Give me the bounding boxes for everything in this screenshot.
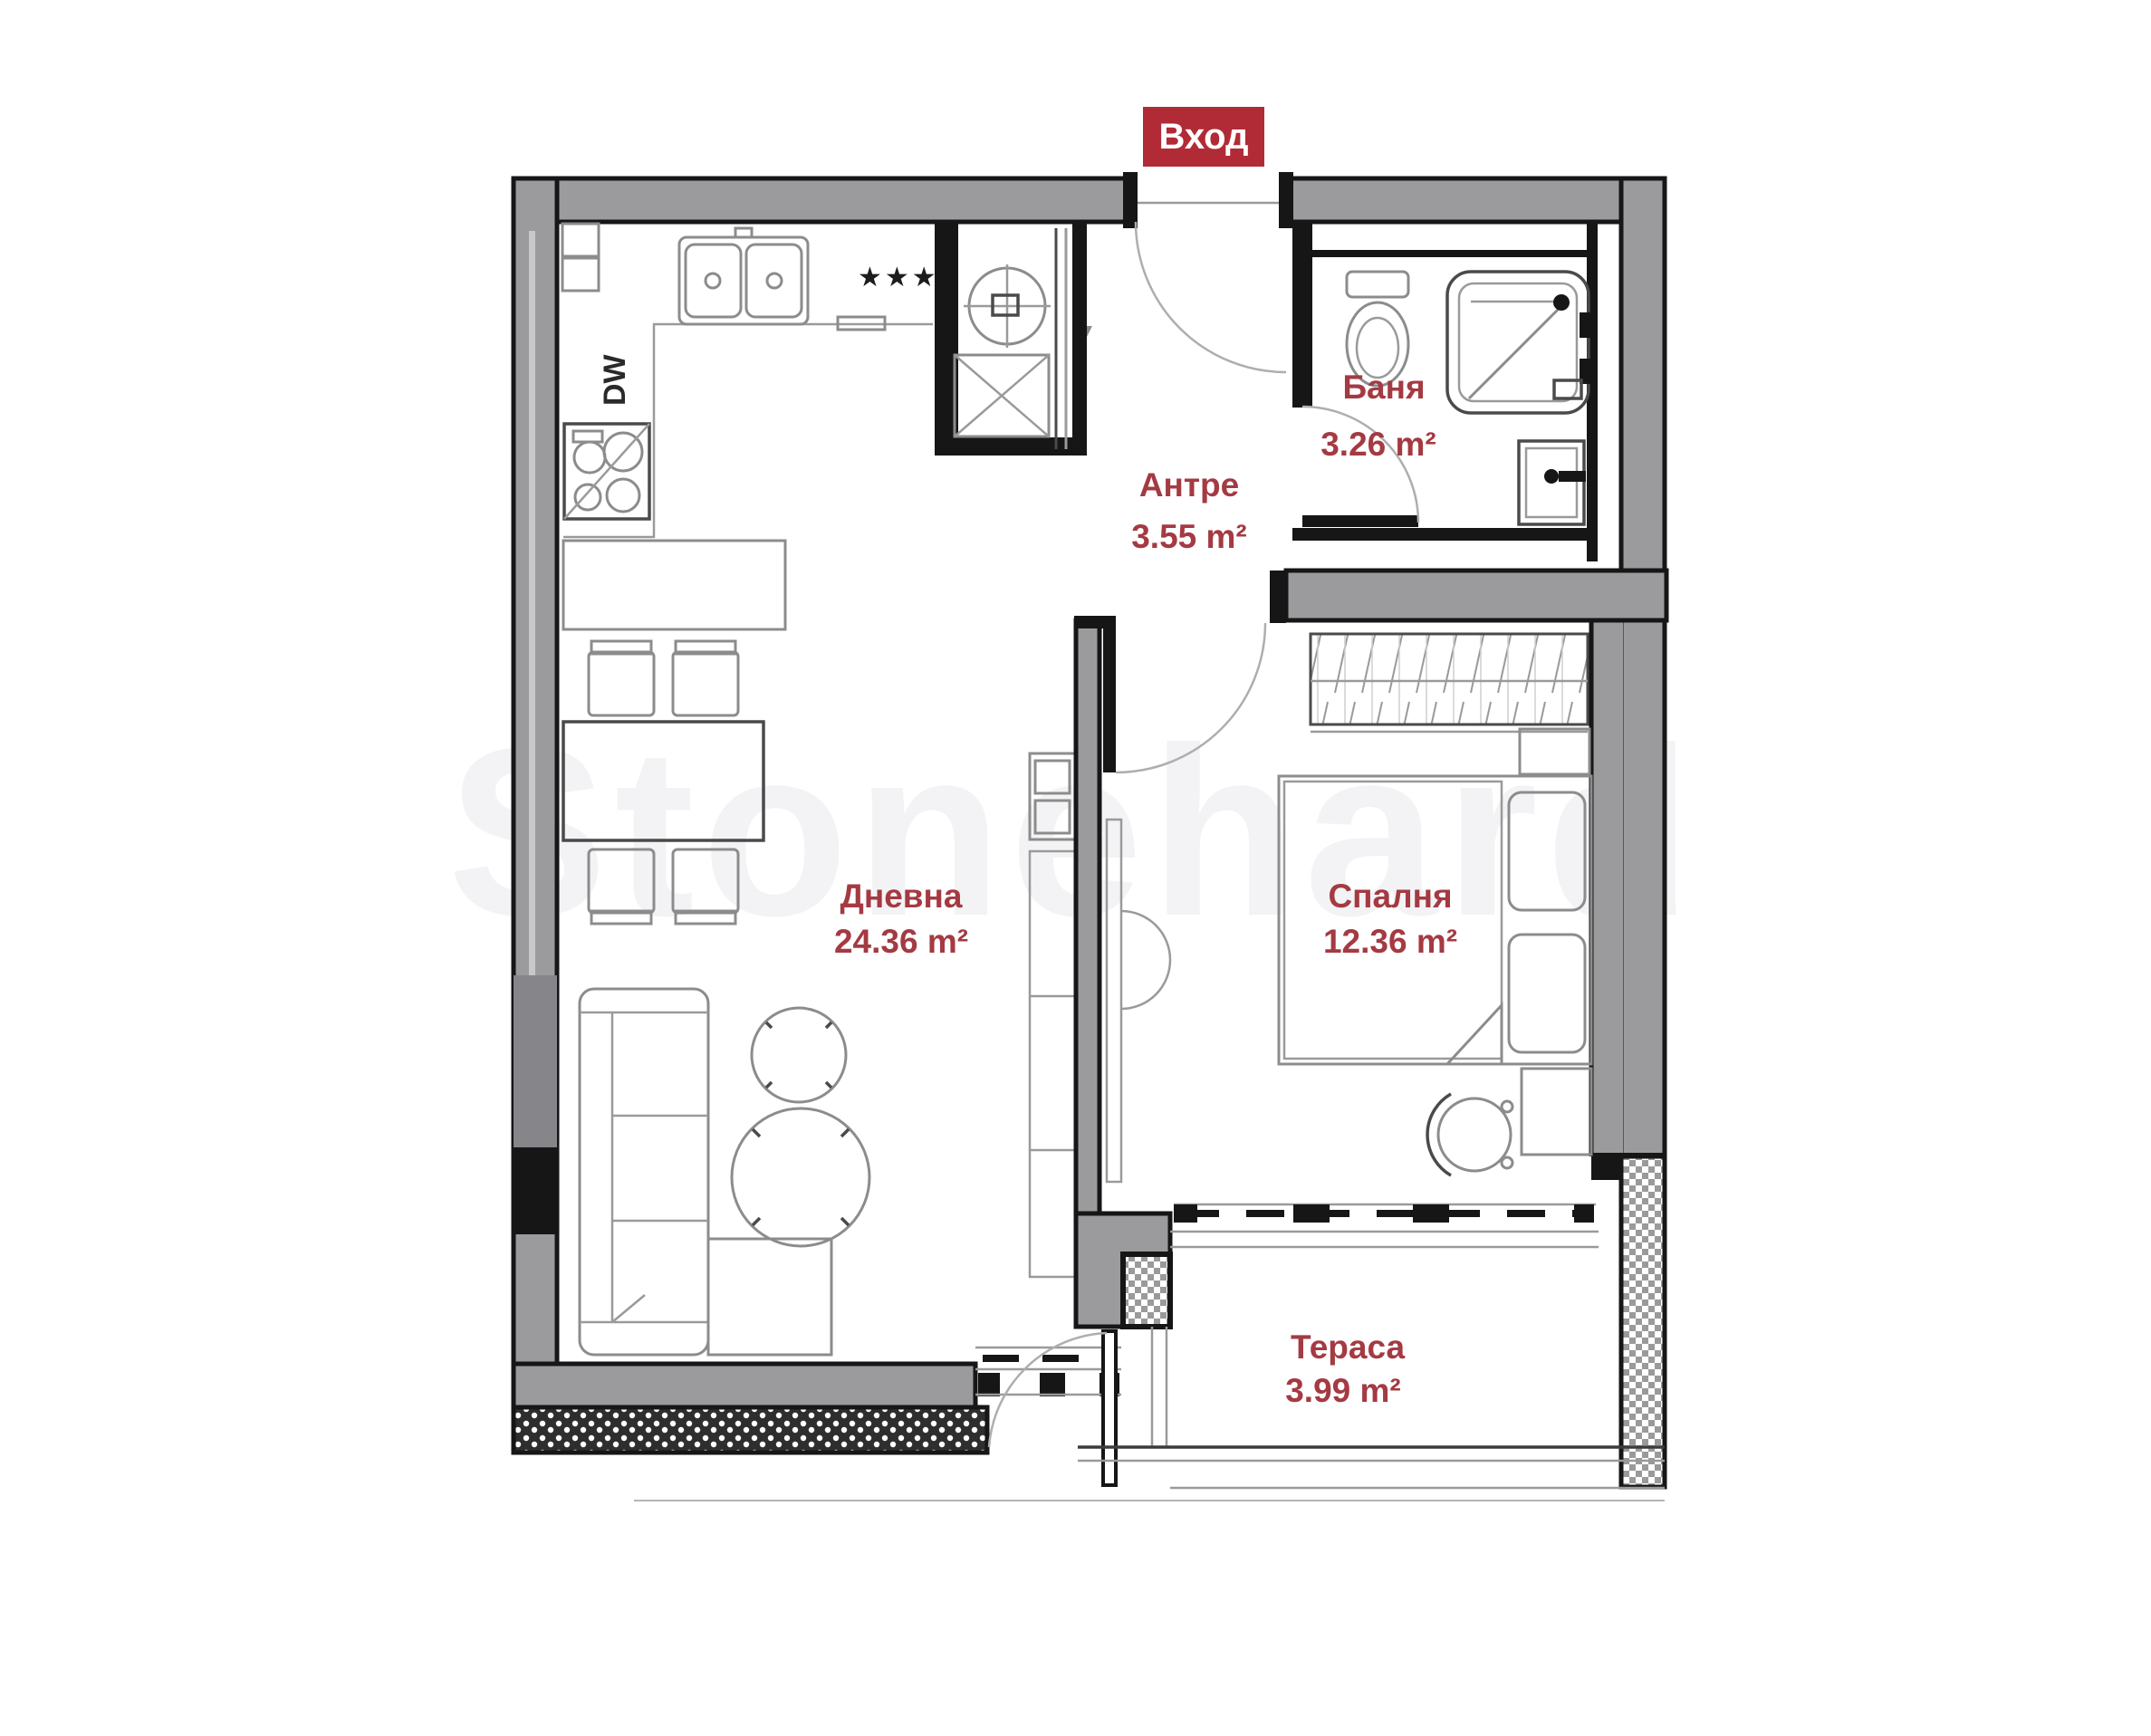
balcony-door-leaf xyxy=(1103,1331,1116,1485)
room-area-bathroom: 3.26 m² xyxy=(1320,426,1436,463)
kitchen-corner-cabinet xyxy=(562,224,599,291)
entrance-jamb-right xyxy=(1279,172,1293,228)
bathroom-door-leaf xyxy=(1302,515,1418,527)
living-window xyxy=(975,1348,1121,1396)
floor-plan-page: Stonehard xyxy=(0,0,2151,1736)
wardrobe-icon xyxy=(1311,634,1588,724)
entrance-jamb-left xyxy=(1123,172,1138,228)
room-label-terrace: Тераса xyxy=(1291,1328,1406,1366)
ottoman xyxy=(708,1239,831,1355)
entry-closet xyxy=(935,222,1087,456)
bedroom-terrace-window xyxy=(1170,1204,1599,1247)
washbasin-icon xyxy=(1519,441,1586,524)
terrace-corner-insulation xyxy=(1123,1254,1170,1327)
tv-shelf-unit xyxy=(1030,753,1075,1277)
entrance-badge-label: Вход xyxy=(1159,117,1249,157)
room-area-living: 24.36 m² xyxy=(834,923,968,960)
entrance-badge: Вход xyxy=(1143,107,1264,167)
coffee-table-small xyxy=(752,1008,846,1102)
floor-plan-drawing: Stonehard xyxy=(0,0,2151,1736)
coffee-table-large xyxy=(732,1108,869,1246)
room-label-bedroom: Спалня xyxy=(1328,878,1452,915)
bathroom-door-arc xyxy=(1302,407,1418,523)
shower-icon xyxy=(1447,272,1594,413)
kitchen-island xyxy=(563,541,785,629)
bathroom-zone xyxy=(1292,222,1598,561)
bedroom-chair-icon xyxy=(1427,1094,1512,1175)
entrance-door-arc xyxy=(1136,222,1286,372)
terrace-rail-hatch xyxy=(1621,1156,1665,1487)
room-area-hallway: 3.55 m² xyxy=(1131,518,1247,555)
bedroom-door-leaf xyxy=(1103,623,1116,772)
stove-icon xyxy=(564,424,649,519)
hob-stars-icon: ★★★ xyxy=(858,262,939,293)
room-area-bedroom: 12.36 m² xyxy=(1323,923,1457,960)
washing-machine-icon xyxy=(964,264,1051,348)
kitchen-sink-icon xyxy=(679,228,808,324)
balcony-door xyxy=(989,1331,1116,1485)
room-label-living: Дневна xyxy=(840,878,963,915)
room-label-bathroom: Баня xyxy=(1342,369,1425,406)
sofa-icon xyxy=(580,989,708,1355)
shaft-cross-icon xyxy=(955,355,1049,436)
insulation-strip-bottom xyxy=(514,1407,987,1453)
bedside-table xyxy=(1522,1069,1591,1155)
dishwasher-label: DW xyxy=(598,353,632,406)
room-label-hallway: Антре xyxy=(1139,466,1239,504)
room-area-terrace: 3.99 m² xyxy=(1285,1372,1401,1409)
kitchen-zone: ★★★ DW xyxy=(562,224,939,629)
watermark-text: Stonehard xyxy=(447,698,1699,966)
